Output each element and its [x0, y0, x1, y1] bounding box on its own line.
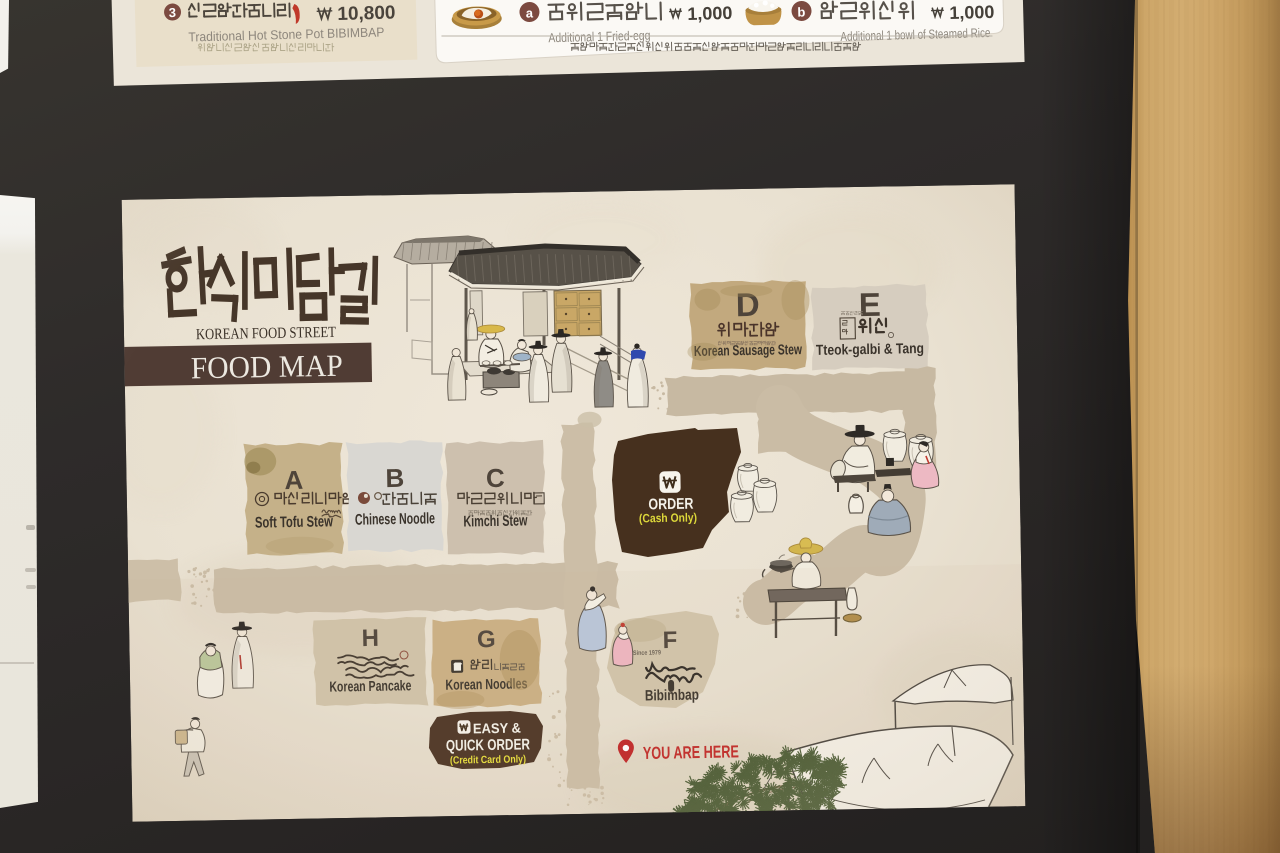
svg-text:3: 3 [169, 5, 177, 20]
svg-text:b: b [797, 4, 805, 19]
svg-text:1,000: 1,000 [949, 2, 995, 23]
svg-text:a: a [526, 5, 534, 20]
svg-text:10,800: 10,800 [337, 3, 396, 26]
svg-text:Additional 1 bowl of Steamed R: Additional 1 bowl of Steamed Rice [840, 25, 990, 44]
svg-text:1,000: 1,000 [687, 3, 733, 24]
